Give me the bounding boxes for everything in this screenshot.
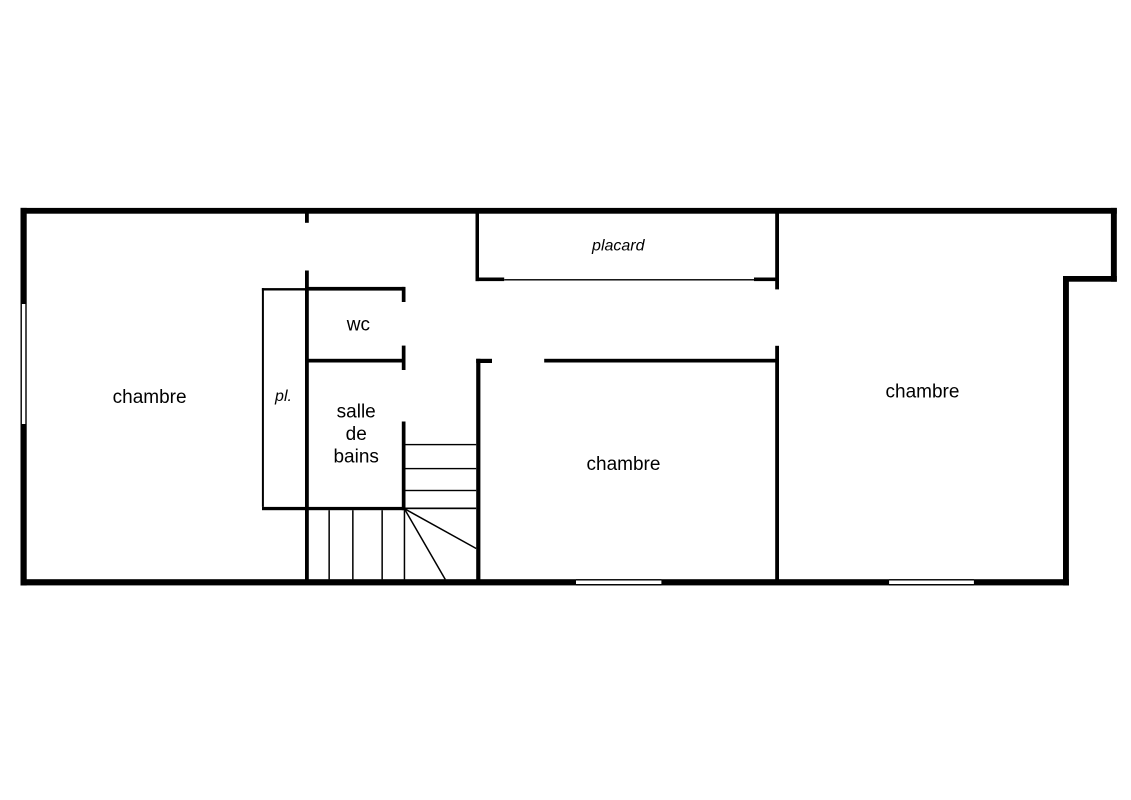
svg-text:chambre: chambre: [113, 387, 187, 408]
svg-text:pl.: pl.: [274, 388, 292, 405]
svg-text:placard: placard: [591, 238, 646, 255]
svg-text:chambre: chambre: [886, 381, 960, 402]
svg-text:chambre: chambre: [587, 454, 661, 475]
svg-text:bains: bains: [333, 447, 378, 468]
svg-text:wc: wc: [346, 315, 370, 336]
svg-text:de: de: [346, 424, 367, 445]
svg-text:salle: salle: [337, 402, 376, 423]
